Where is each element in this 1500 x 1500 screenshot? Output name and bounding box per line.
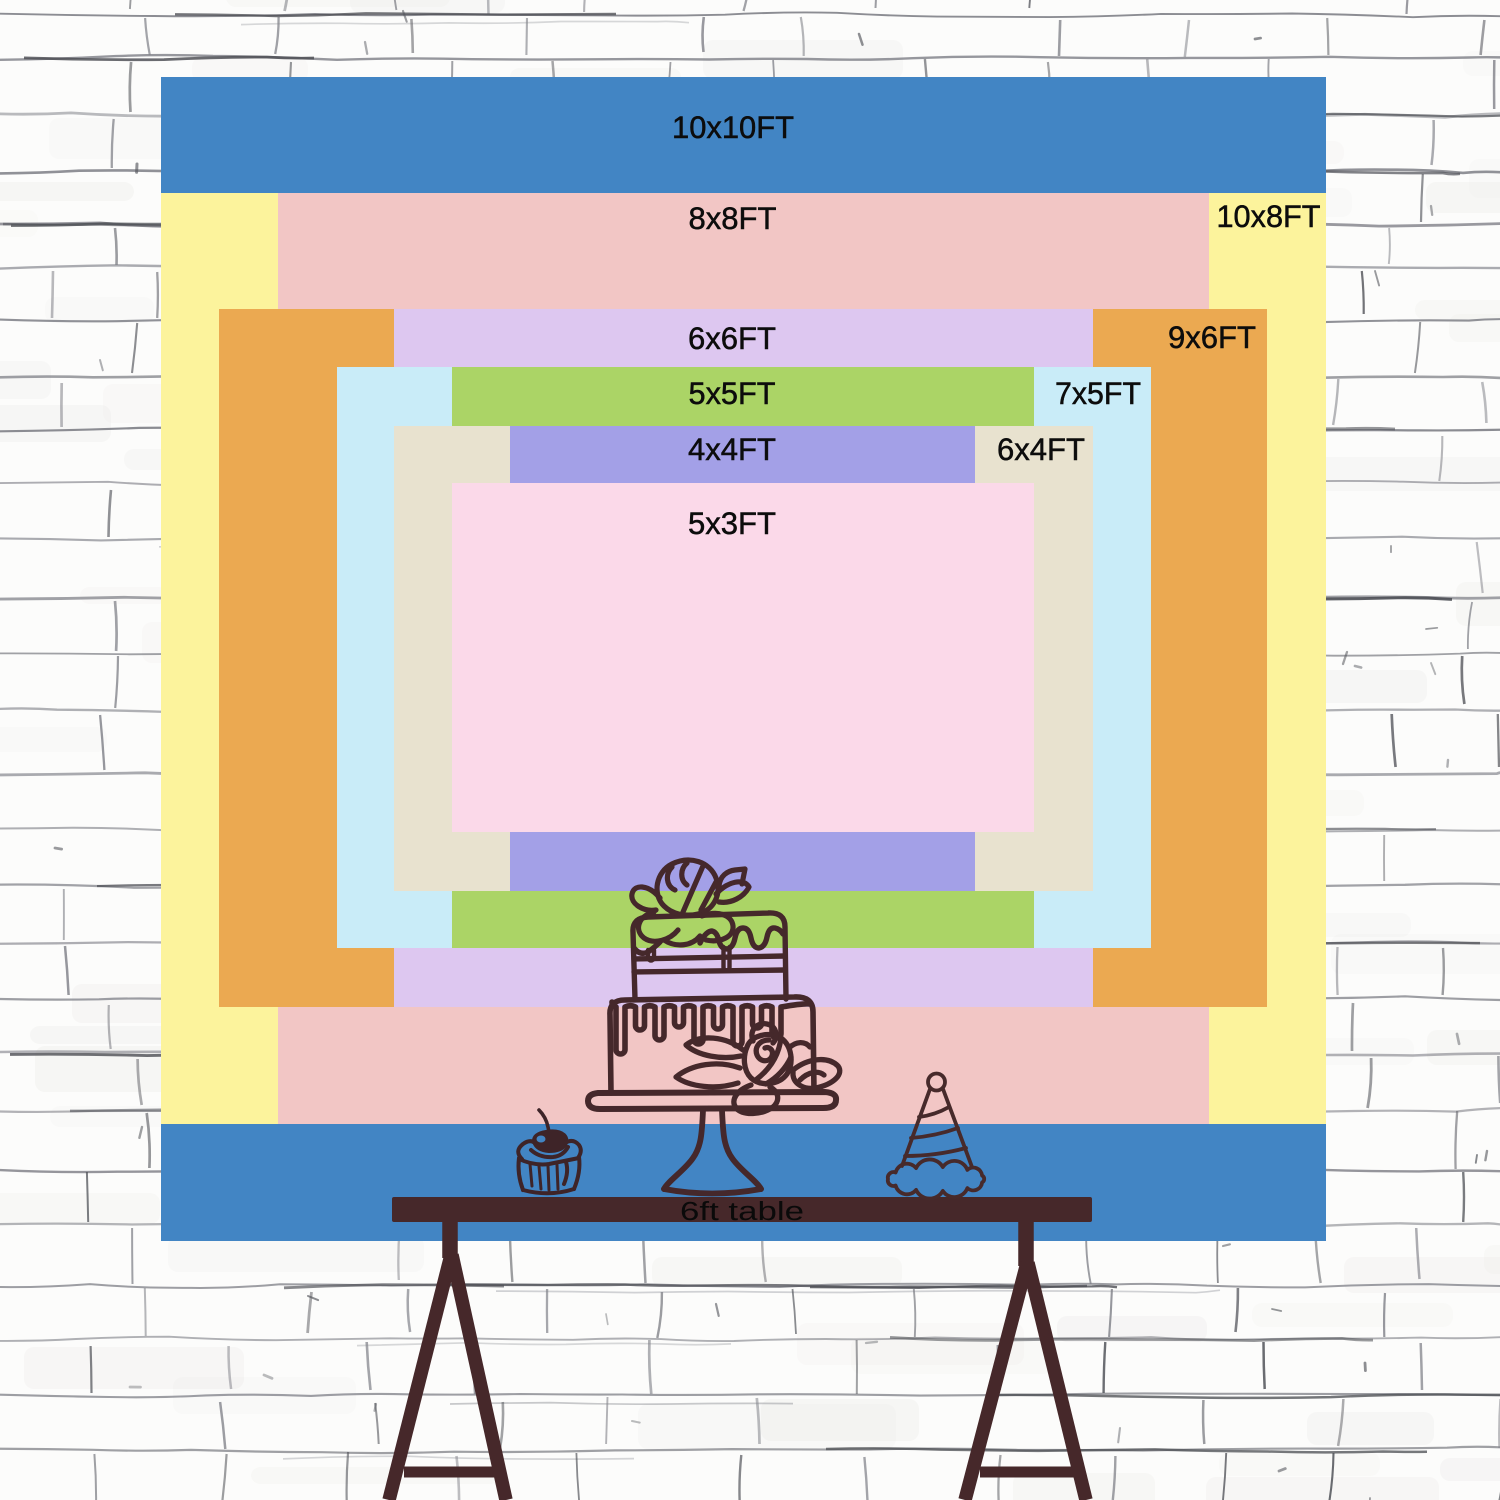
svg-text:5x3FT: 5x3FT <box>688 505 776 541</box>
svg-text:7x5FT: 7x5FT <box>1055 375 1141 411</box>
svg-text:6x6FT: 6x6FT <box>688 320 776 356</box>
svg-text:6x4FT: 6x4FT <box>997 431 1085 467</box>
svg-text:10x10FT: 10x10FT <box>672 109 794 145</box>
svg-text:5x5FT: 5x5FT <box>689 375 776 411</box>
svg-text:8x8FT: 8x8FT <box>689 200 777 236</box>
svg-text:9x6FT: 9x6FT <box>1168 319 1256 355</box>
svg-text:10x8FT: 10x8FT <box>1217 198 1321 234</box>
svg-text:4x4FT: 4x4FT <box>688 431 776 467</box>
svg-text:6ft table: 6ft table <box>680 1198 804 1226</box>
